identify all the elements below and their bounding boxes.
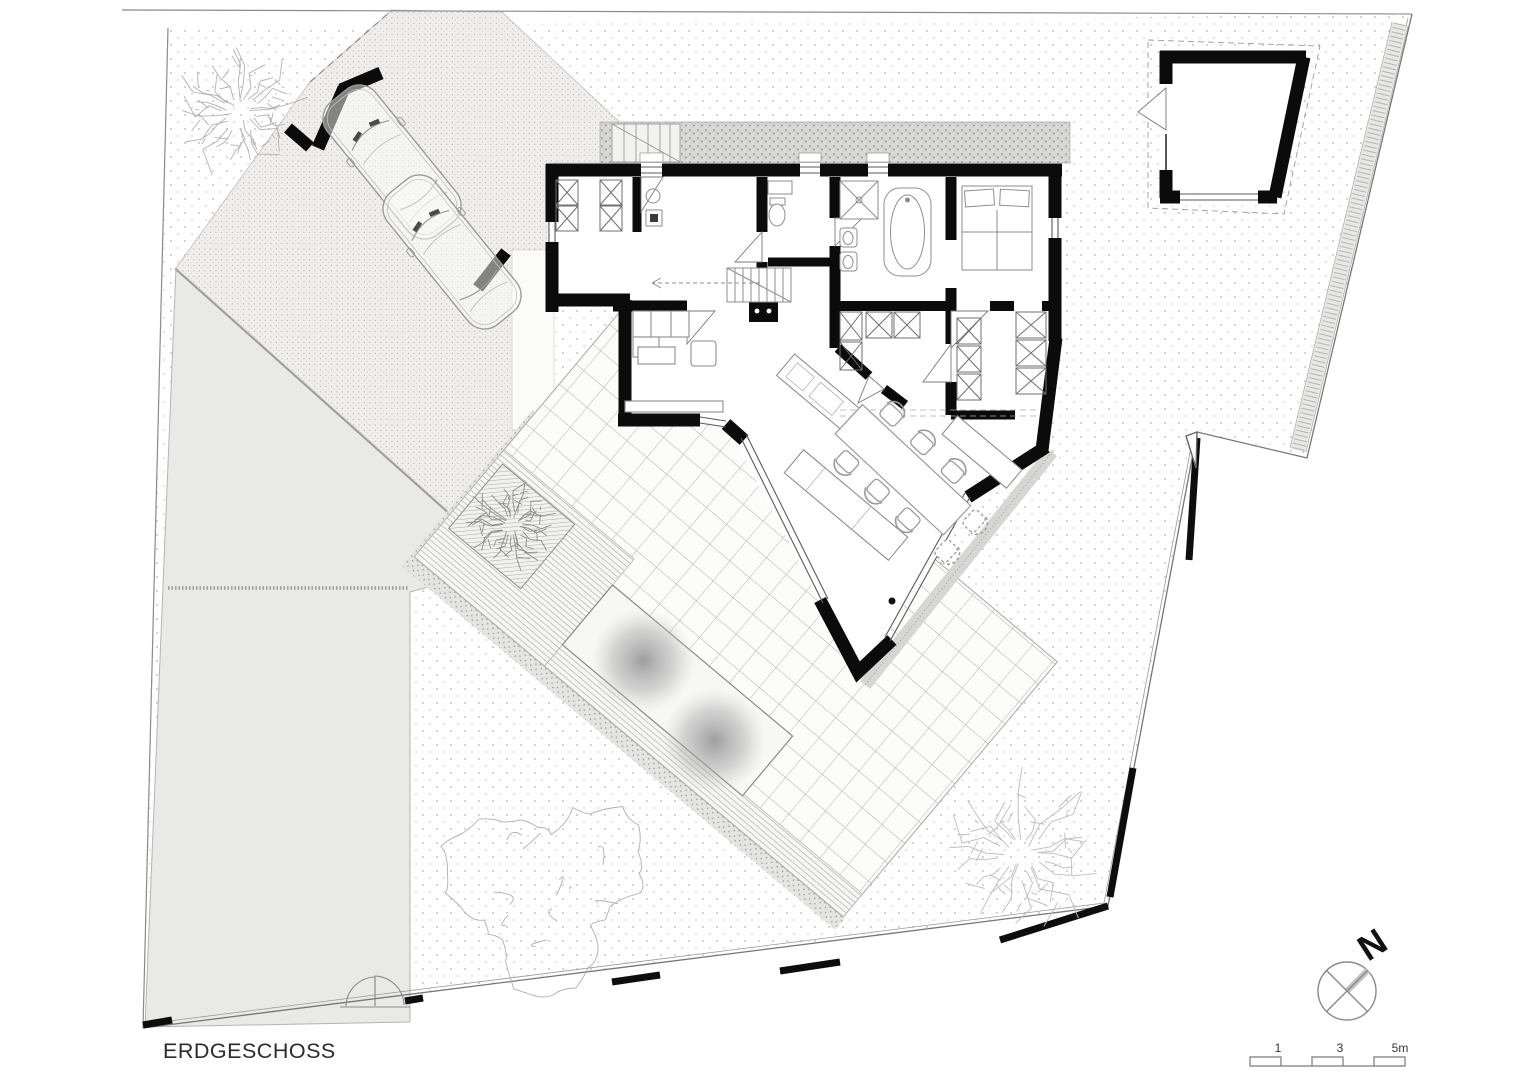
sofa (633, 311, 689, 337)
bathtub (884, 188, 931, 276)
gravel-strip (600, 122, 1070, 163)
scale-tick-1: 1 (1275, 1041, 1282, 1055)
plan-title: ERDGESCHOSS (163, 1039, 336, 1063)
scale-tick-5m: 5m (1392, 1041, 1409, 1055)
column (889, 598, 896, 605)
north-label: N (1350, 920, 1394, 969)
fireplace (749, 300, 778, 322)
scale-bar: 1 3 5m (1250, 1041, 1408, 1066)
sideboard (625, 401, 723, 412)
north-arrow: N (1318, 920, 1394, 1020)
coffee-table (638, 347, 675, 364)
scale-tick-3: 3 (1337, 1041, 1344, 1055)
armchair (691, 341, 716, 366)
site-plan-canvas: ERDGESCHOSS N 1 3 5m (0, 0, 1530, 1080)
bedroom (962, 186, 1032, 270)
